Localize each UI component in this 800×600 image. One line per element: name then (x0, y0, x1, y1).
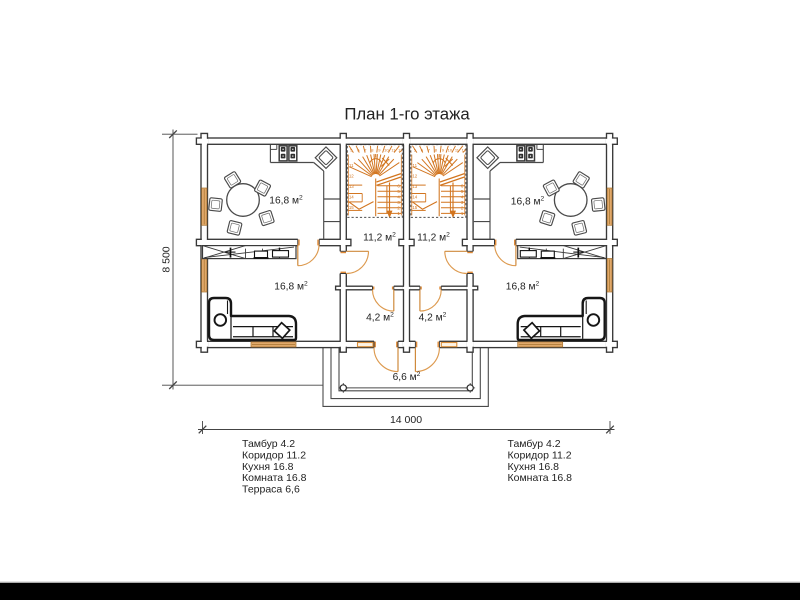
svg-text:15: 15 (412, 205, 417, 210)
svg-text:11,2 м2: 11,2 м2 (363, 232, 396, 244)
svg-text:Комната 16.8: Комната 16.8 (242, 472, 307, 484)
svg-text:Коридор 11.2: Коридор 11.2 (242, 449, 306, 461)
svg-text:13: 13 (349, 184, 354, 189)
svg-text:15: 15 (349, 205, 354, 210)
svg-text:Тамбур 4.2: Тамбур 4.2 (508, 438, 561, 450)
svg-text:16,8 м2: 16,8 м2 (269, 195, 303, 207)
svg-text:14: 14 (412, 195, 417, 200)
svg-text:13: 13 (412, 184, 417, 189)
svg-text:Терраса 6,6: Терраса 6,6 (242, 484, 300, 496)
svg-text:11: 11 (413, 163, 418, 168)
svg-text:16,8 м2: 16,8 м2 (274, 281, 308, 293)
svg-text:12: 12 (349, 174, 354, 179)
svg-text:8 500: 8 500 (161, 246, 173, 272)
svg-text:6,6 м2: 6,6 м2 (393, 371, 421, 383)
svg-text:16,8 м2: 16,8 м2 (506, 281, 540, 293)
svg-text:16,8 м2: 16,8 м2 (511, 196, 545, 208)
svg-text:10: 10 (448, 148, 453, 153)
svg-text:Коридор 11.2: Коридор 11.2 (508, 449, 572, 461)
svg-text:Тамбур 4.2: Тамбур 4.2 (242, 438, 295, 450)
svg-text:11: 11 (349, 163, 354, 168)
svg-text:Кухня 16.8: Кухня 16.8 (508, 461, 560, 473)
svg-text:14: 14 (349, 195, 354, 200)
svg-text:12: 12 (412, 174, 417, 179)
svg-text:Комната 16.8: Комната 16.8 (508, 472, 573, 484)
svg-text:14 000: 14 000 (390, 414, 422, 426)
svg-text:4,2 м2: 4,2 м2 (419, 312, 447, 324)
svg-text:10: 10 (384, 148, 389, 153)
svg-text:Кухня 16.8: Кухня 16.8 (242, 461, 294, 473)
svg-text:План 1-го этажа: План 1-го этажа (344, 105, 470, 124)
svg-text:11,2 м2: 11,2 м2 (417, 232, 450, 244)
svg-text:4,2 м2: 4,2 м2 (366, 312, 394, 324)
